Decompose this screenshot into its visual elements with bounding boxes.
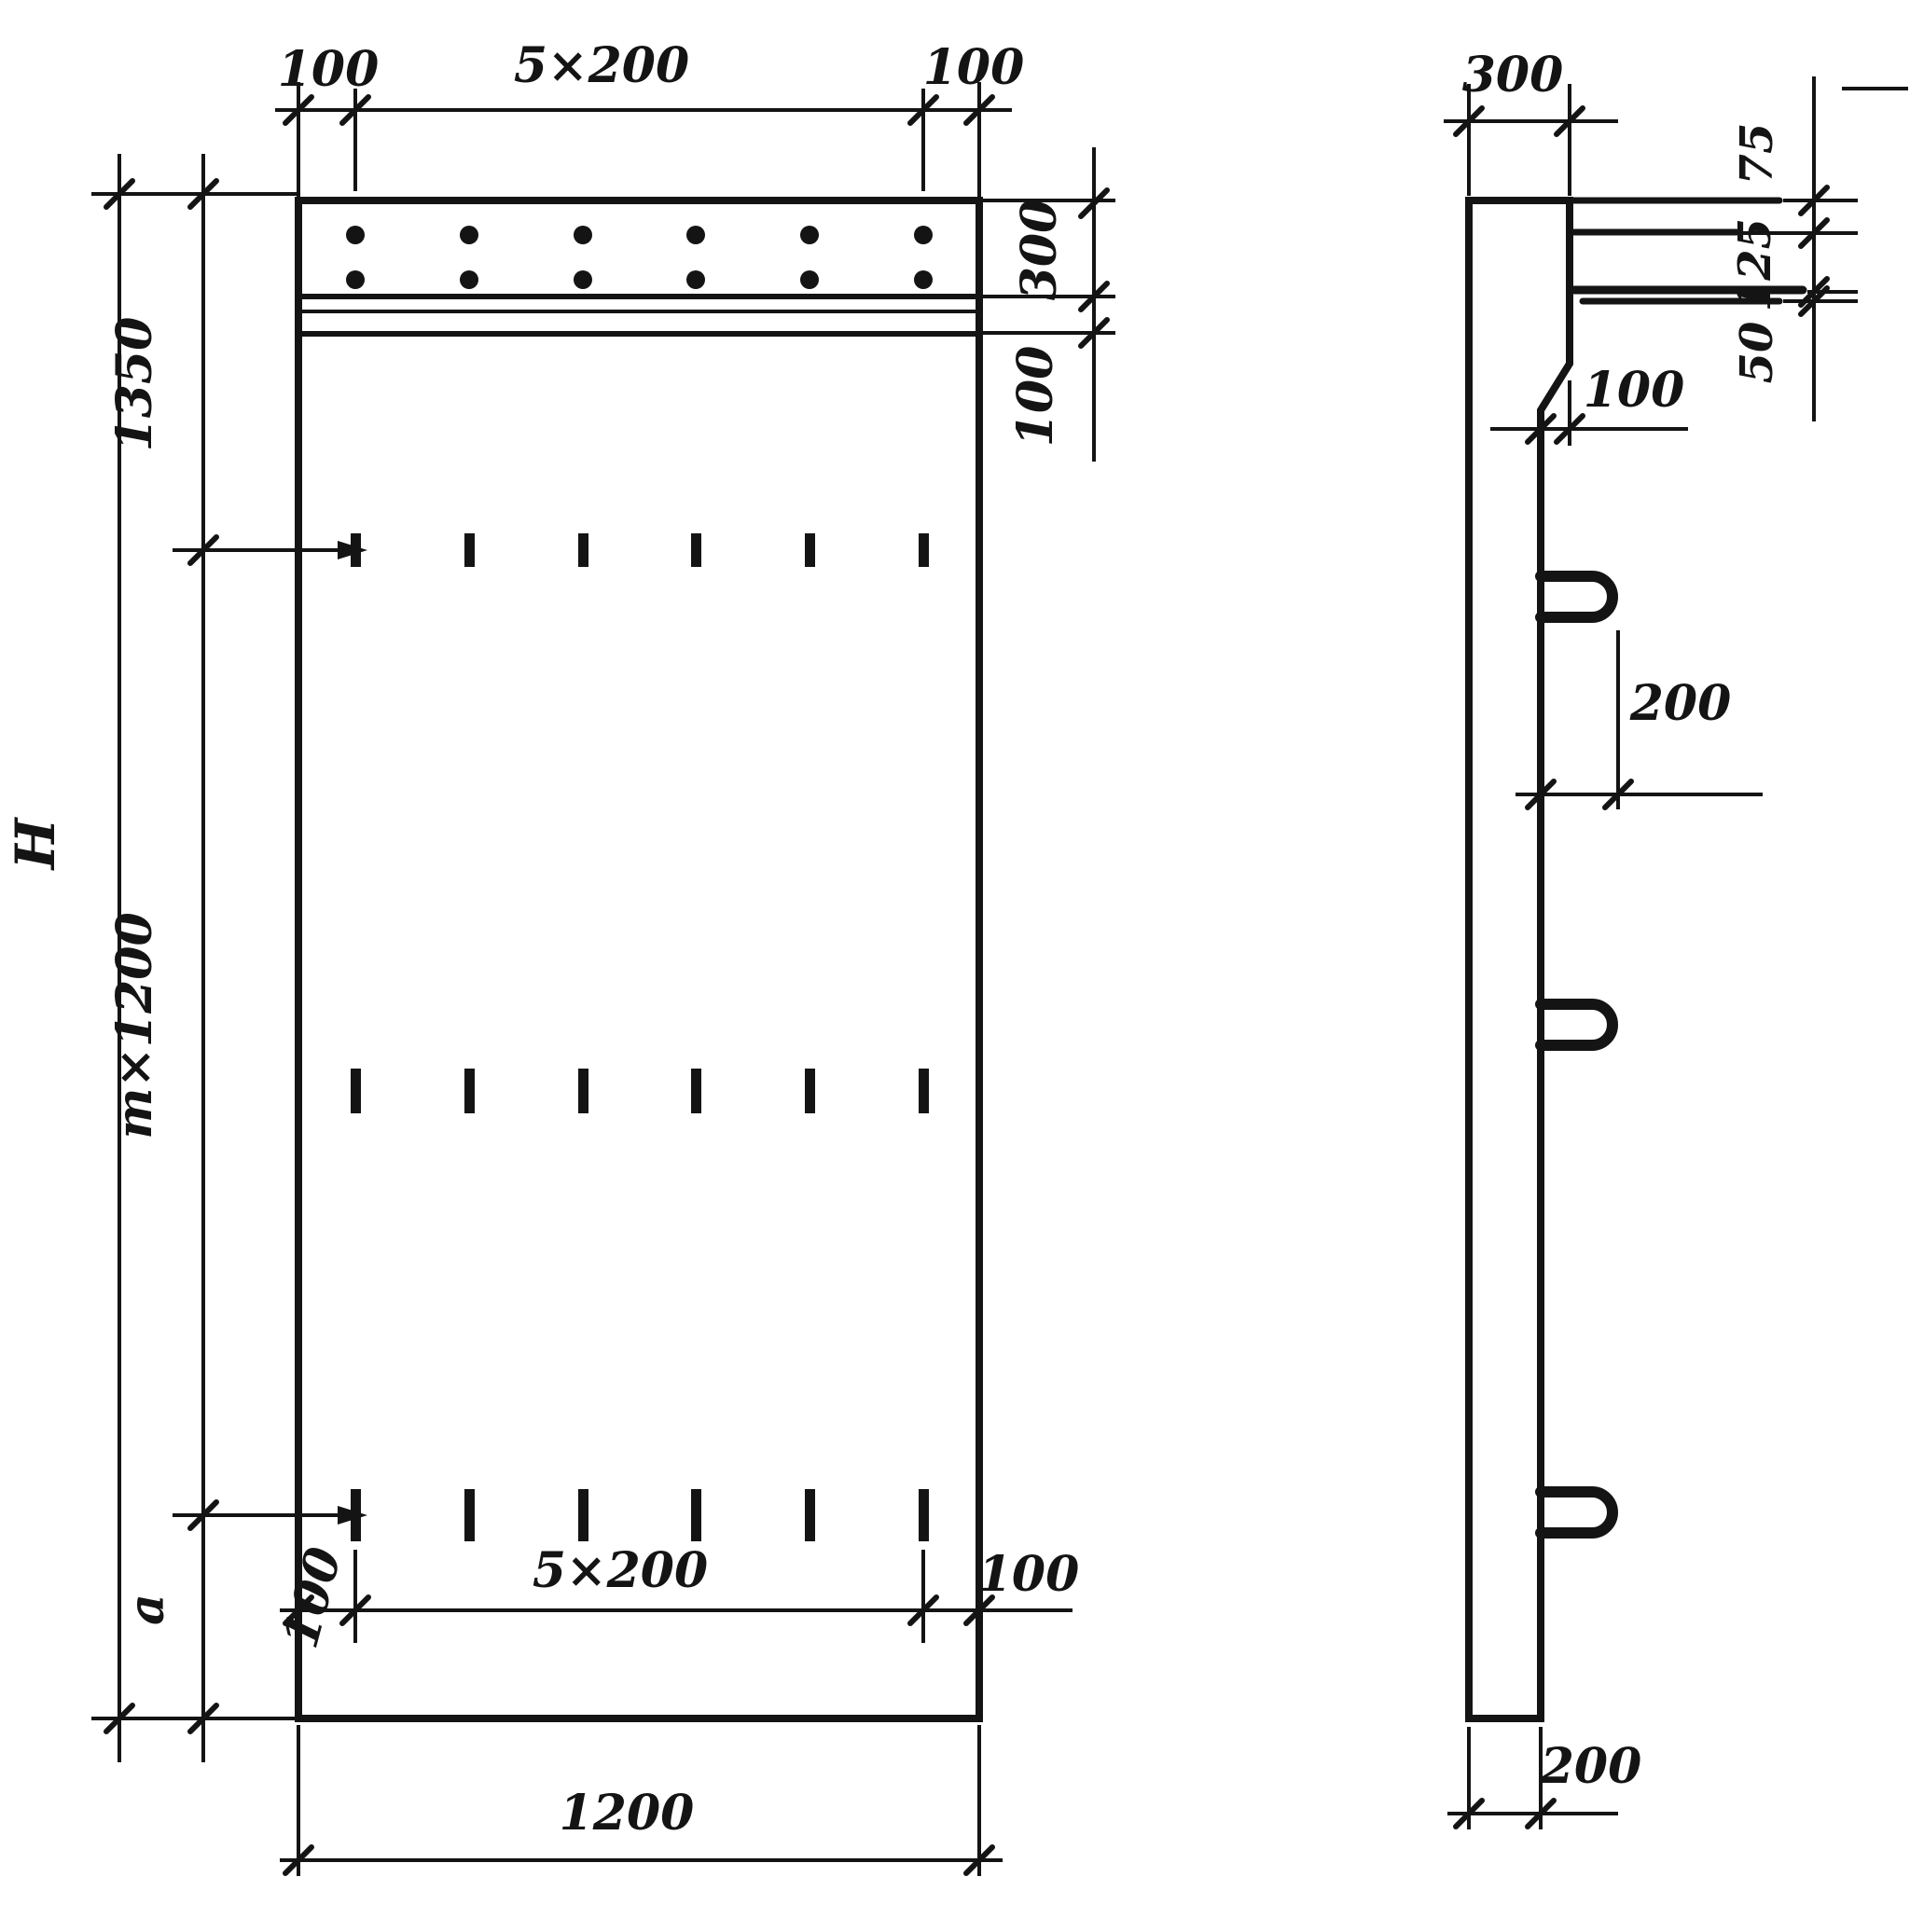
dim-label-1350: 1350 [106,317,163,452]
dim-label-50: 50 [1731,322,1783,384]
dim-label-bottom-right-100: 100 [978,1546,1080,1603]
dim-label-side-300: 300 [1462,47,1564,103]
dim-label-1200: 1200 [560,1785,695,1842]
rebar-dash-row-2 [351,1069,929,1113]
rebar-dash-row-1 [351,533,929,567]
lifting-loops [1541,576,1612,1533]
dim-label-75: 75 [1731,123,1783,186]
dim-label-top-5x200: 5×200 [514,37,689,94]
dim-label-bottom-left-100: 100 [272,1541,353,1654]
lifting-loop-2 [1541,1004,1612,1045]
lifting-loop-3 [1541,1492,1612,1533]
dim-label-H: H [4,816,67,871]
side-view-dimensions: 300 75 125 50 100 200 200 [1444,47,1908,1829]
drawing-sheet: 100 5×200 100 300 100 1350 H m×1200 a [0,0,1910,1932]
panel-outline [298,200,979,1718]
dim-label-bottom-5x200: 5×200 [533,1542,708,1599]
dim-label-125: 125 [1729,218,1781,311]
dim-label-top-right-100: 100 [923,39,1025,96]
dim-label-mx1200: m×1200 [106,912,163,1138]
dim-label-band-300: 300 [1011,200,1068,301]
dim-label-bottom-200: 200 [1540,1738,1642,1795]
front-view [298,200,979,1718]
dim-label-gap-100: 100 [1007,346,1064,448]
dim-label-a: a [118,1594,175,1625]
rebar-dash-row-3 [351,1489,929,1541]
anchor-dots [346,226,933,289]
technical-drawing: 100 5×200 100 300 100 1350 H m×1200 a [0,0,1910,1932]
lifting-loop-1 [1541,576,1612,617]
dim-label-step-100: 100 [1584,362,1685,419]
dim-label-loop-200: 200 [1629,675,1732,732]
dim-label-top-left-100: 100 [278,41,380,98]
